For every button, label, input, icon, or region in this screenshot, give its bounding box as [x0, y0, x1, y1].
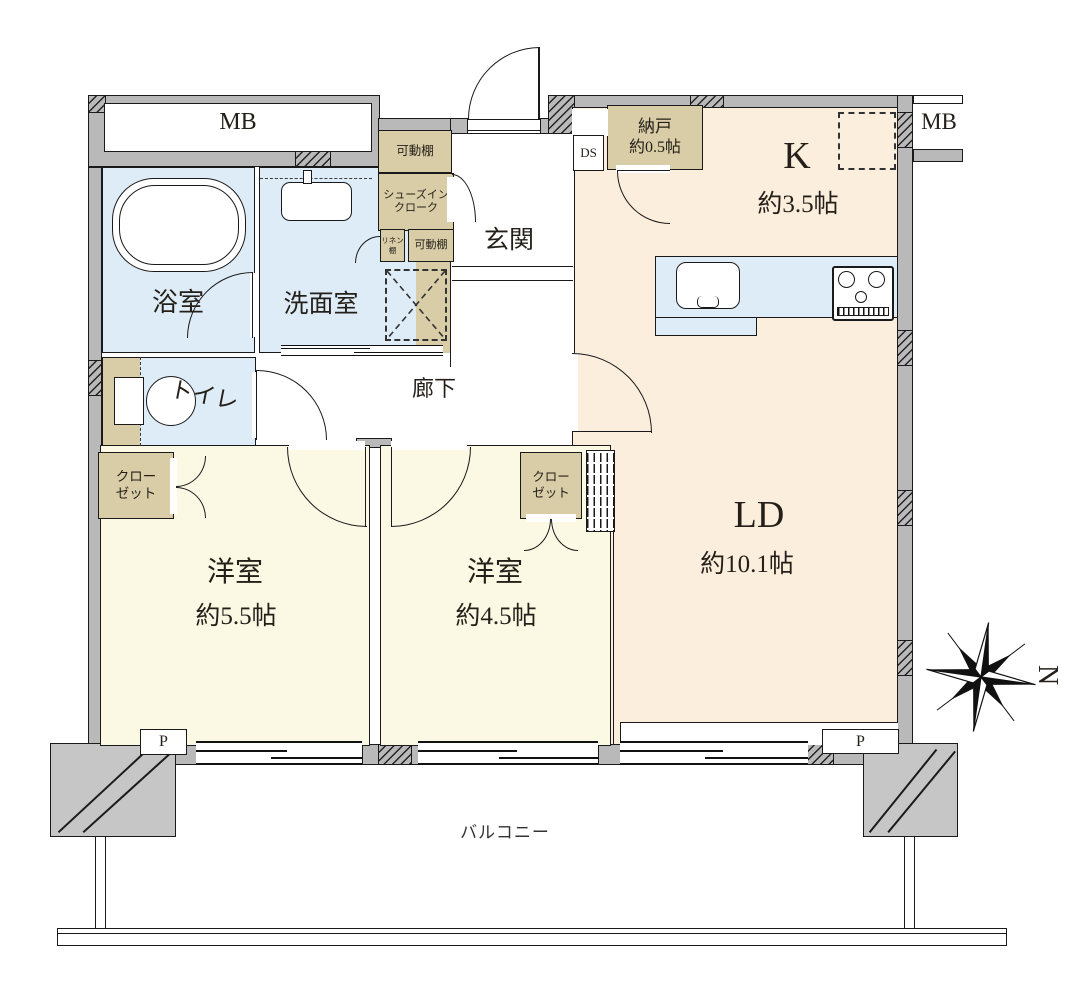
toilet-door-panel — [256, 370, 257, 440]
corridor-label: 廊下 — [410, 376, 458, 403]
column-hatch-icon — [864, 744, 957, 836]
shoes-in-cloak-label: シューズインクローク — [381, 189, 451, 216]
entrance-threshold — [468, 119, 540, 131]
toilet-door-arc — [257, 370, 327, 440]
movable-shelf-top: 可動棚 — [378, 130, 452, 173]
bedroom2-label: 洋室 — [445, 556, 545, 590]
kitchen-counter-step — [655, 316, 757, 336]
balcony-post-left — [95, 837, 106, 929]
wall-hatch — [378, 744, 412, 765]
pipe-left-label: P — [159, 732, 168, 752]
entrance-step — [452, 266, 573, 281]
closet-left: クローゼット — [98, 452, 174, 519]
storage-size: 約0.5帖 — [629, 138, 681, 158]
pipe-space-left: P — [140, 729, 187, 755]
toilet-tank-icon — [114, 377, 144, 425]
washbasin-icon — [281, 182, 352, 221]
kitchen-sink-notch-icon — [697, 296, 719, 308]
ld-size: 約10.1帖 — [678, 550, 816, 581]
bedroom1-size: 約5.5帖 — [178, 602, 294, 633]
washroom-sliding-door — [281, 345, 443, 356]
mb-right-stub — [913, 149, 963, 162]
balcony-post-right — [904, 837, 915, 929]
ld-label: LD — [722, 492, 796, 538]
pipe-right-label: P — [856, 732, 865, 752]
compass-icon — [922, 618, 1040, 736]
wall-hatch — [897, 330, 913, 366]
burner-icon — [838, 271, 855, 288]
faucet-icon — [303, 170, 312, 184]
wall-hatch — [88, 360, 102, 396]
north-label: N — [1030, 658, 1064, 692]
balcony-railing — [57, 928, 1007, 946]
wall-hatch — [897, 640, 913, 676]
vanity-counter-line — [260, 178, 372, 179]
ld-door-panel — [572, 431, 652, 432]
ld-bed2-wall — [613, 532, 614, 744]
bedroom2-door-panel — [391, 447, 392, 527]
storage-door-panel — [617, 170, 670, 171]
bathtub-inner-icon — [119, 185, 239, 265]
floor-plan: MB MB バルコニー — [0, 0, 1072, 984]
wall-hatch — [295, 150, 331, 167]
washer-space — [385, 269, 447, 341]
mb-right-label: MB — [916, 108, 962, 136]
pipe-space-right: P — [822, 729, 899, 754]
kitchen-size: 約3.5帖 — [738, 190, 858, 221]
column-hatch-icon — [51, 744, 175, 836]
bathroom-label: 浴室 — [126, 287, 230, 319]
bedroom2-window — [418, 741, 598, 765]
linen-shelf: リネン棚 — [380, 229, 405, 262]
shoes-in-cloak: シューズインクローク — [378, 173, 454, 231]
storage-label: 納戸 — [638, 117, 672, 138]
wall-bottom-c — [598, 744, 622, 765]
balcony-column-right — [863, 743, 958, 837]
mb-left-label: MB — [208, 108, 268, 137]
bathroom-door-panel — [252, 272, 253, 338]
entrance-door-arc — [468, 47, 540, 119]
refrigerator-space — [838, 112, 896, 170]
wall-hatch — [897, 112, 913, 148]
ld-window — [620, 741, 808, 765]
movable-shelf-mid: 可動棚 — [408, 229, 454, 262]
bedroom1-label: 洋室 — [185, 556, 285, 590]
ds-niche — [572, 109, 608, 136]
storage-room: 納戸 約0.5帖 — [607, 105, 703, 170]
entrance-label: 玄関 — [482, 226, 536, 257]
closet-right-label: クローゼット — [529, 470, 573, 501]
burner-icon — [855, 291, 867, 303]
movable-shelf-top-label: 可動棚 — [396, 144, 434, 159]
bedroom2-size: 約4.5帖 — [438, 602, 554, 633]
wall-top-entrance-a — [450, 118, 468, 134]
ds-label: DS — [580, 145, 597, 161]
entrance-door-panel — [538, 47, 540, 120]
wall-storage-strip — [586, 450, 615, 532]
ds-box: DS — [573, 135, 604, 171]
wall-hatch — [897, 490, 913, 526]
closet-left-label: クローゼット — [113, 469, 159, 502]
closet-right: クローゼット — [520, 452, 582, 519]
stove-grill-icon — [837, 307, 889, 316]
balcony-label: バルコニー — [440, 823, 570, 844]
mb-right-ledge — [913, 95, 963, 104]
burner-icon — [868, 271, 885, 288]
washer-x-icon — [387, 271, 445, 339]
bedroom1-door-panel — [365, 447, 366, 527]
kitchen-label: K — [775, 133, 819, 179]
movable-shelf-mid-label: 可動棚 — [415, 239, 448, 252]
linen-shelf-label: リネン棚 — [381, 236, 404, 254]
washroom-label: 洗面室 — [282, 290, 360, 321]
balcony-column-left — [50, 743, 176, 837]
bedroom1-window — [196, 741, 362, 765]
